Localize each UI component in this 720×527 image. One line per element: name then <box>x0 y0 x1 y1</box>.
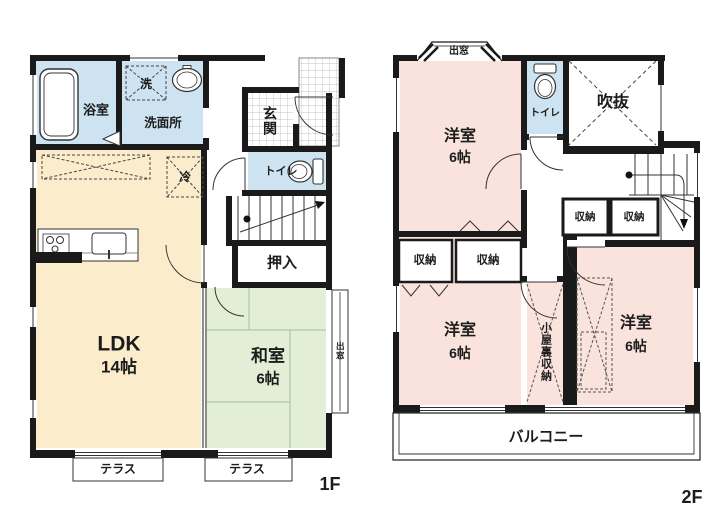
floor-plan: 浴室 洗 洗面所 玄関 トイレ 冷 押入 LDK 14帖 和室 6帖 出窓 テラ… <box>0 0 720 527</box>
kitchen-counter-icon <box>36 229 138 263</box>
label-washitsu-1f: 和室 <box>251 348 285 365</box>
stairs-1f <box>238 196 325 240</box>
label-bedroom-sw-size-2f: 6帖 <box>449 346 471 360</box>
label-balcony-2f: バルコニー <box>509 430 584 445</box>
plan-linework <box>0 0 720 527</box>
label-terrace-right-1f: テラス <box>229 463 265 475</box>
label-closet-1f: 押入 <box>267 256 297 271</box>
label-ldk-size-1f: 14帖 <box>101 359 137 376</box>
washbasin-icon <box>173 66 202 92</box>
label-bay-window-2f: 出窓 <box>449 47 469 57</box>
label-bedroom-se-2f: 洋室 <box>620 316 652 332</box>
label-washitsu-size-1f: 6帖 <box>256 372 279 387</box>
label-bedroom-nw-size-2f: 6帖 <box>449 150 471 164</box>
label-bedroom-sw-2f: 洋室 <box>444 323 476 339</box>
label-attic-storage-2f: 小屋裏収納 <box>540 322 551 382</box>
label-bedroom-se-size-2f: 6帖 <box>625 339 647 353</box>
label-entrance-1f: 玄関 <box>263 106 277 136</box>
label-ldk-1f: LDK <box>97 334 140 355</box>
label-bath-1f: 浴室 <box>83 104 109 117</box>
label-bay-window-1f: 出窓 <box>336 342 345 361</box>
bath-door-icon <box>103 131 120 146</box>
ldk-dashed-box <box>42 155 150 179</box>
label-storage-sw-left-2f: 収納 <box>414 255 437 267</box>
bathtub-icon <box>40 69 78 140</box>
label-storage-mid-right-2f: 収納 <box>624 212 645 223</box>
label-floor-2f: 2F <box>681 488 702 506</box>
label-toilet-1f: トイレ <box>265 167 298 178</box>
label-storage-sw-right-2f: 収納 <box>477 255 500 267</box>
label-terrace-left-1f: テラス <box>100 463 136 475</box>
sliding-partition-1f <box>203 288 206 448</box>
label-laundry-1f: 洗 <box>140 78 152 90</box>
label-floor-1f: 1F <box>319 475 340 493</box>
label-washroom-1f: 洗面所 <box>144 117 182 130</box>
label-bedroom-nw-2f: 洋室 <box>444 129 476 145</box>
label-fridge-1f: 冷 <box>179 171 191 183</box>
tatami-lines <box>207 288 326 448</box>
label-storage-mid-left-2f: 収納 <box>575 212 596 223</box>
toilet-icon-2f <box>534 64 556 99</box>
label-toilet-2f: トイレ <box>530 109 560 119</box>
label-void-2f: 吹抜 <box>597 95 629 111</box>
